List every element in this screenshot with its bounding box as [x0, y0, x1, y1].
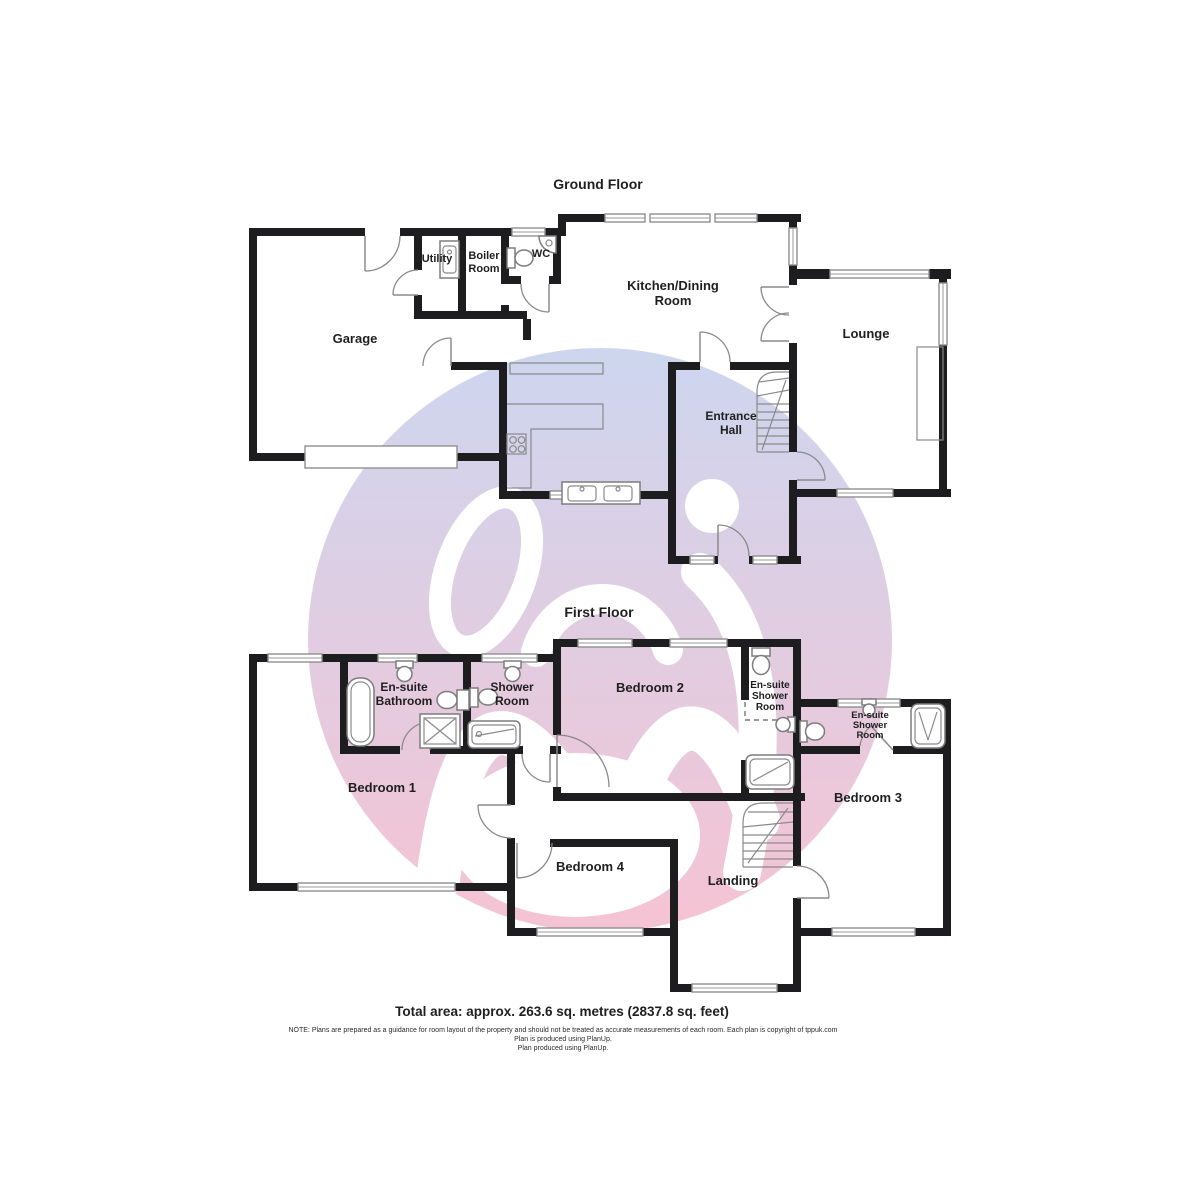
window-icon [789, 228, 797, 265]
toilet-icon [800, 721, 825, 742]
window-icon [578, 639, 632, 647]
door-icon [393, 270, 418, 295]
room-label-ensuite-b2-3: Room [756, 702, 784, 713]
door-icon [797, 866, 829, 898]
window-icon [832, 928, 915, 936]
ground-floor-title: Ground Floor [553, 176, 643, 192]
room-label-ensuite-bath-2: Bathroom [376, 694, 433, 708]
room-label-wc: WC [532, 248, 550, 260]
room-label-ensuite-b3-3: Room [857, 730, 884, 741]
room-label-entrance-2: Hall [720, 423, 742, 437]
total-area-text: Total area: approx. 263.6 sq. metres (28… [395, 1004, 729, 1019]
room-label-kitchen-1: Kitchen/Dining [627, 278, 719, 293]
room-label-bedroom4: Bedroom 4 [556, 859, 625, 874]
window-icon [650, 214, 710, 222]
sink-icon [504, 661, 521, 682]
room-label-ensuite-bath-1: En-suite [380, 680, 428, 694]
room-label-landing: Landing [708, 873, 759, 888]
toilet-icon [507, 248, 533, 268]
room-label-ensuite-b2-2: Shower [752, 691, 788, 702]
door-icon [423, 338, 451, 366]
window-icon [298, 883, 455, 891]
room-label-shower-room-1: Shower [490, 680, 534, 694]
room-label-kitchen-2: Room [655, 293, 692, 308]
footer-produced-text-2: Plan produced using PlanUp. [518, 1045, 609, 1052]
room-label-utility: Utility [422, 253, 453, 265]
garage-door-icon [305, 446, 457, 468]
room-label-boiler-2: Room [468, 263, 499, 275]
toilet-icon [752, 648, 770, 675]
floorplan-page: Ground Floor Garage Utility Boiler Room … [0, 0, 1200, 1200]
shower-cubicle-icon [911, 704, 945, 748]
door-icon [365, 236, 400, 271]
shower-tray-icon [746, 755, 794, 789]
window-icon [605, 214, 645, 222]
window-icon [670, 639, 727, 647]
footer: Total area: approx. 263.6 sq. metres (28… [288, 1004, 837, 1052]
window-icon [690, 556, 714, 564]
window-icon [692, 984, 777, 992]
room-label-ensuite-b2-1: En-suite [750, 680, 790, 691]
kitchen-sink-icon [562, 482, 640, 504]
footer-note-text: NOTE: Plans are prepared as a guidance f… [288, 1027, 837, 1034]
window-icon [537, 928, 643, 936]
shower-tray-icon [468, 721, 520, 748]
shower-icon [420, 714, 460, 748]
room-label-boiler-1: Boiler [468, 250, 500, 262]
footer-produced-text-1: Plan is produced using PlanUp. [514, 1036, 612, 1043]
window-icon [837, 489, 893, 497]
room-label-bedroom1: Bedroom 1 [348, 780, 416, 795]
window-icon [830, 270, 929, 278]
room-label-lounge: Lounge [843, 326, 890, 341]
door-icon [521, 284, 549, 312]
door-icon [700, 332, 730, 362]
window-icon [753, 556, 777, 564]
window-icon [715, 214, 757, 222]
window-icon [939, 283, 947, 345]
room-label-garage: Garage [333, 331, 378, 346]
room-label-bedroom2: Bedroom 2 [616, 680, 684, 695]
window-icon [512, 228, 545, 236]
room-label-entrance-1: Entrance [705, 409, 757, 423]
window-icon [268, 654, 322, 662]
floorplan-canvas: Ground Floor Garage Utility Boiler Room … [0, 0, 1200, 1200]
room-label-shower-room-2: Room [495, 694, 529, 708]
sink-icon [396, 661, 413, 682]
bathtub-icon [347, 678, 374, 746]
sink-icon [776, 717, 795, 732]
room-label-bedroom3: Bedroom 3 [834, 790, 902, 805]
first-floor-title: First Floor [564, 604, 634, 620]
french-doors-icon [761, 287, 789, 341]
toilet-icon [437, 690, 469, 710]
